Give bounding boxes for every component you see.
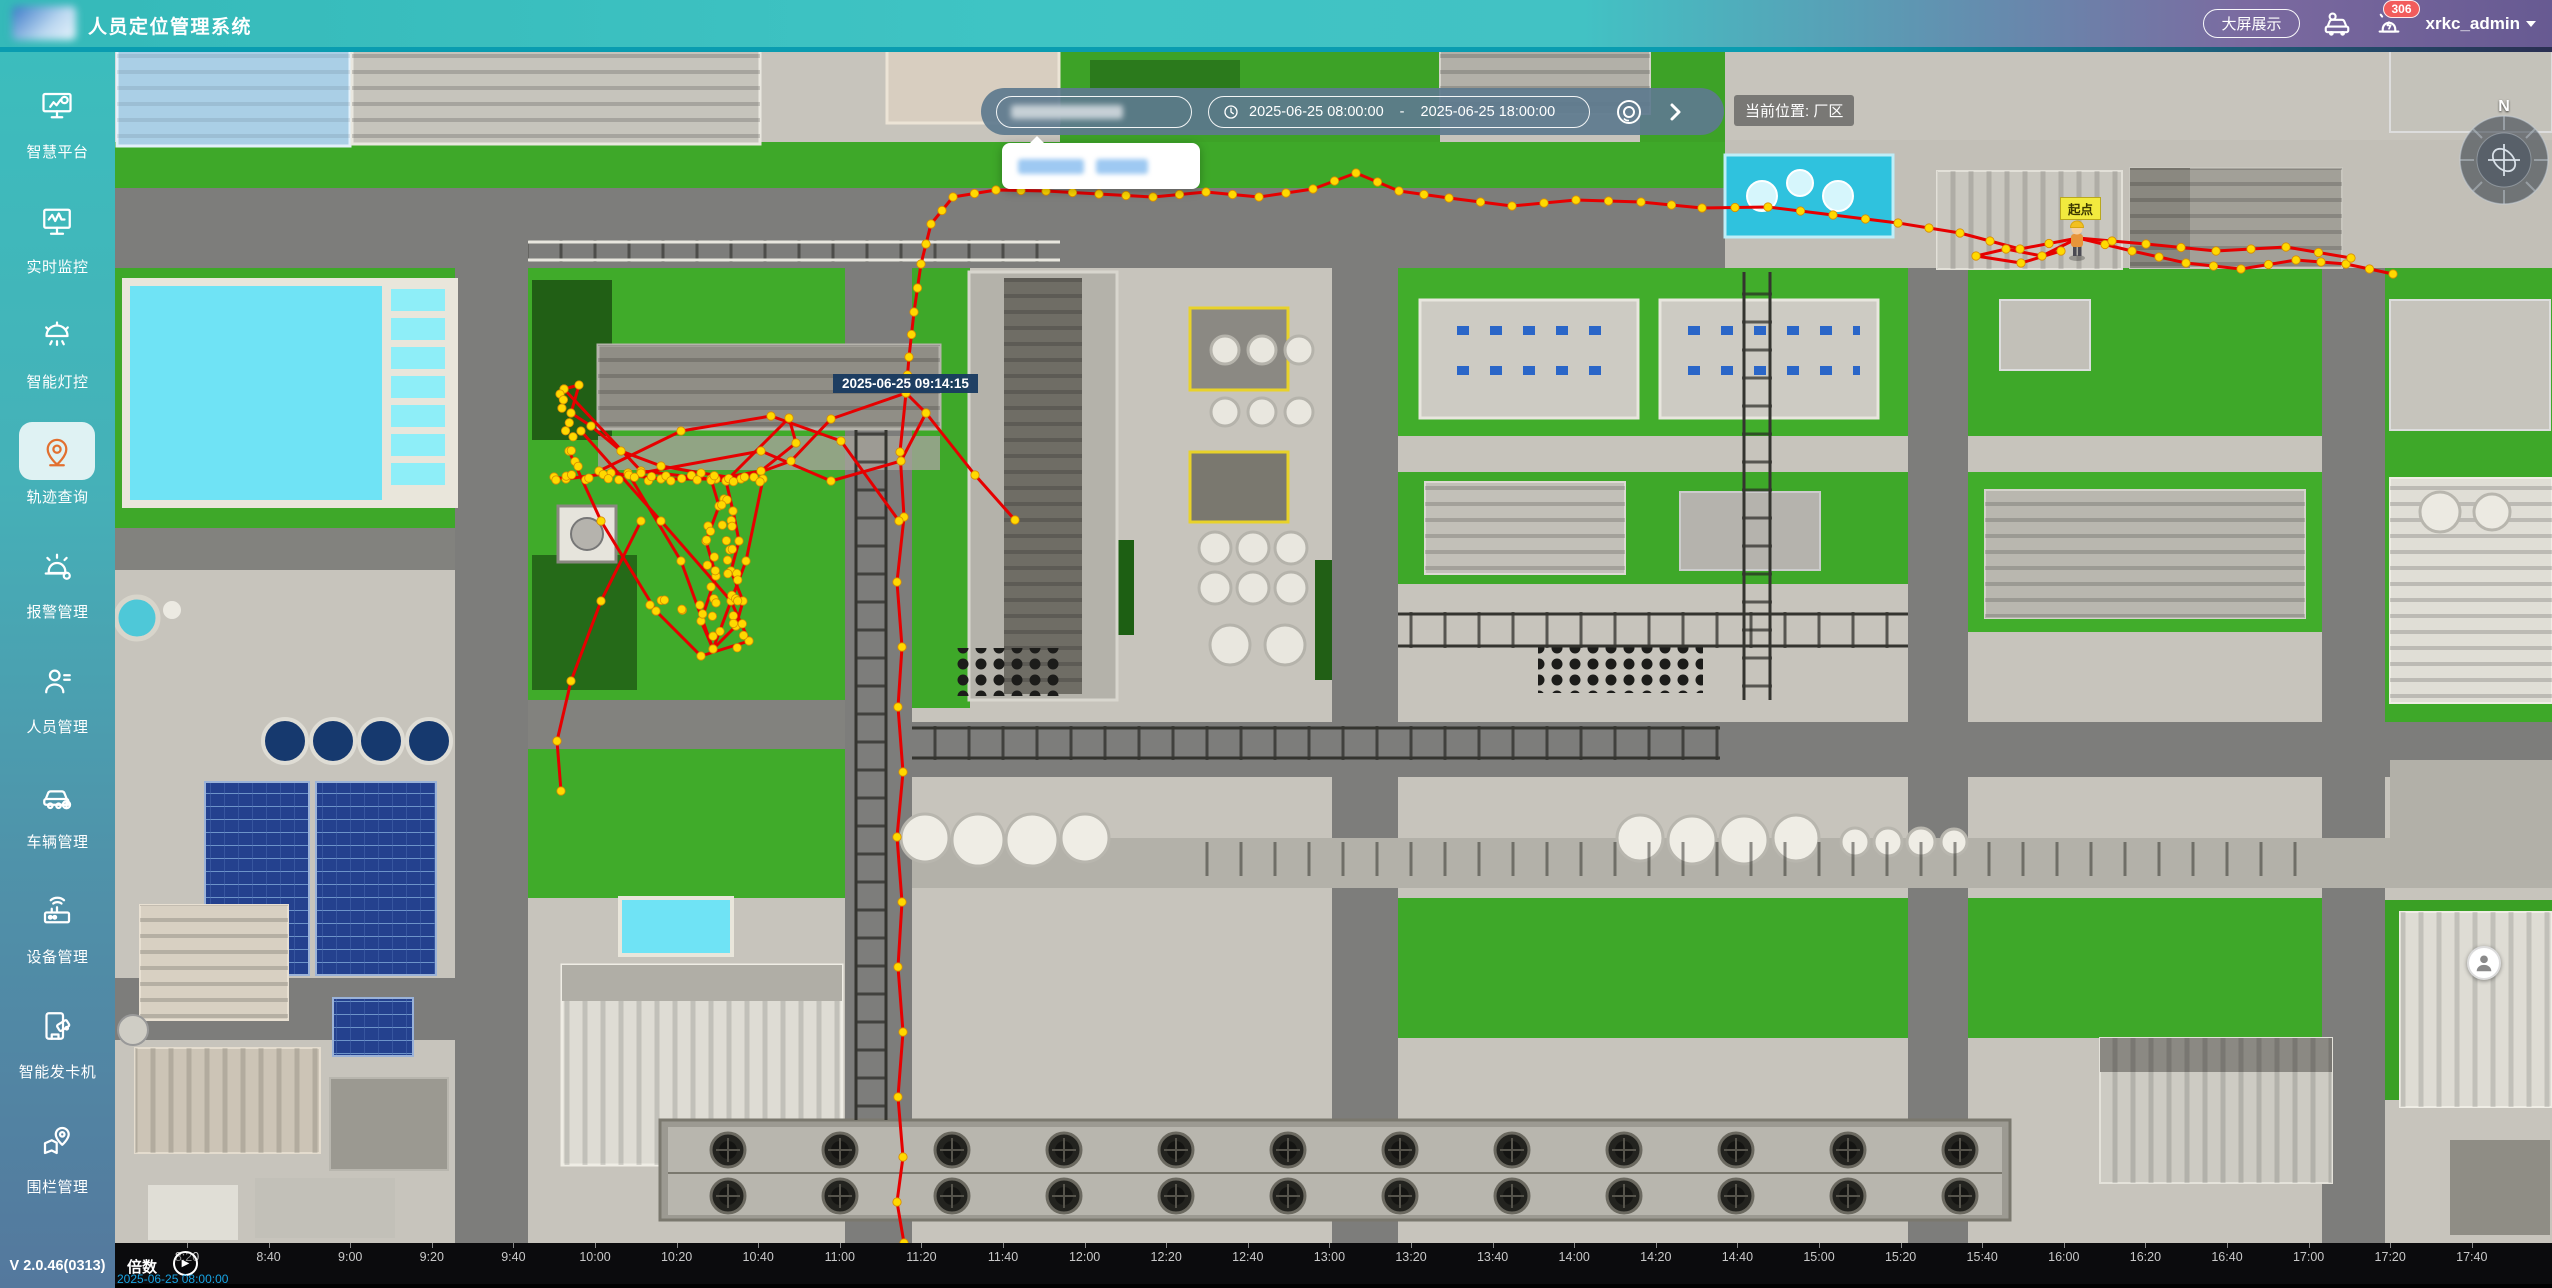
timeline-tickmark bbox=[840, 1243, 841, 1248]
sidebar-item-6[interactable]: 车辆管理 bbox=[19, 767, 97, 882]
sidebar-item-label: 设备管理 bbox=[26, 946, 88, 967]
timeline-tick-label: 16:40 bbox=[2211, 1250, 2242, 1264]
timeline-tick-label: 12:00 bbox=[1069, 1250, 1100, 1264]
date-separator: - bbox=[1400, 104, 1405, 120]
timeline-tickmark bbox=[1329, 1243, 1330, 1248]
timeline-tick-label: 9:20 bbox=[420, 1250, 444, 1264]
suggestion-tag-redacted bbox=[1096, 159, 1148, 174]
sidebar-item-2[interactable]: 智能灯控 bbox=[19, 307, 97, 422]
search-suggestion-item[interactable] bbox=[1002, 143, 1200, 189]
timeline-tick-label: 15:20 bbox=[1885, 1250, 1916, 1264]
timeline-tick-label: 11:20 bbox=[906, 1250, 936, 1264]
dark-warehouse bbox=[598, 345, 940, 470]
timeline-tickmark bbox=[269, 1243, 270, 1248]
timeline-tick-label: 11:40 bbox=[988, 1250, 1018, 1264]
big-screen-button[interactable]: 大屏展示 bbox=[2203, 9, 2299, 38]
sidebar-item-label: 车辆管理 bbox=[26, 831, 88, 852]
start-point-label: 起点 bbox=[2060, 197, 2101, 220]
fence-icon bbox=[19, 1112, 95, 1170]
timeline-tickmark bbox=[2227, 1243, 2228, 1248]
playback-timeline[interactable]: 8:208:409:009:209:4010:0010:2010:4011:00… bbox=[115, 1243, 2552, 1288]
timeline-tickmark bbox=[2390, 1243, 2391, 1248]
timeline-tick-label: 10:00 bbox=[579, 1250, 610, 1264]
timeline-tickmark bbox=[758, 1243, 759, 1248]
sidebar-item-4[interactable]: 报警管理 bbox=[19, 537, 97, 652]
warehouse-top bbox=[352, 46, 760, 144]
aqua-tank-building bbox=[1725, 155, 1893, 237]
timeline-tick-label: 11:00 bbox=[825, 1250, 855, 1264]
alarm-notifications-icon[interactable]: 306 bbox=[2374, 9, 2404, 39]
platform-icon bbox=[19, 77, 95, 135]
locate-target-icon[interactable] bbox=[1612, 95, 1646, 129]
timeline-tick-label: 10:20 bbox=[661, 1250, 692, 1264]
person-icon bbox=[19, 652, 95, 710]
current-location-label: 当前位置: 厂区 bbox=[1734, 95, 1854, 126]
map-canvas[interactable] bbox=[0, 0, 2552, 1288]
timeline-tick-label: 12:20 bbox=[1151, 1250, 1182, 1264]
sidebar-nav: 智慧平台实时监控智能灯控轨迹查询报警管理人员管理车辆管理设备管理智能发卡机围栏管… bbox=[0, 47, 115, 1288]
timeline-tick-label: 8:40 bbox=[256, 1250, 280, 1264]
timeline-tick-label: 17:20 bbox=[2375, 1250, 2406, 1264]
alarm-count-badge: 306 bbox=[2383, 0, 2419, 18]
timeline-tick-label: 16:20 bbox=[2130, 1250, 2161, 1264]
clock-icon bbox=[1223, 104, 1239, 120]
worker-marker[interactable] bbox=[2062, 218, 2092, 267]
timeline-tickmark bbox=[921, 1243, 922, 1248]
timeline-tickmark bbox=[2309, 1243, 2310, 1248]
selected-building-2 bbox=[1190, 452, 1288, 522]
timeline-tickmark bbox=[350, 1243, 351, 1248]
sidebar-item-label: 轨迹查询 bbox=[26, 486, 88, 507]
timeline-tickmark bbox=[1737, 1243, 1738, 1248]
timeline-tickmark bbox=[432, 1243, 433, 1248]
timeline-tickmark bbox=[2145, 1243, 2146, 1248]
user-menu[interactable]: xrkc_admin bbox=[2426, 14, 2537, 34]
timeline-tick-label: 9:40 bbox=[501, 1250, 525, 1264]
timeline-tickmark bbox=[1819, 1243, 1820, 1248]
timeline-tick-label: 13:20 bbox=[1395, 1250, 1426, 1264]
timeline-tickmark bbox=[595, 1243, 596, 1248]
round-tank bbox=[116, 597, 158, 639]
bottom-right-building bbox=[2100, 1038, 2332, 1183]
timeline-tick-label: 13:40 bbox=[1477, 1250, 1508, 1264]
username-text: xrkc_admin bbox=[2426, 14, 2521, 34]
card-icon bbox=[19, 997, 95, 1055]
app-logo bbox=[12, 6, 76, 40]
sidebar-item-label: 围栏管理 bbox=[26, 1176, 88, 1197]
timeline-tickmark bbox=[677, 1243, 678, 1248]
timeline-tick-label: 16:00 bbox=[2048, 1250, 2079, 1264]
timeline-tickmark bbox=[1085, 1243, 1086, 1248]
date-range-picker[interactable]: 2025-06-25 08:00:00 - 2025-06-25 18:00:0… bbox=[1208, 96, 1590, 128]
long-building bbox=[969, 272, 1117, 700]
date-end: 2025-06-25 18:00:00 bbox=[1421, 104, 1556, 120]
timeline-tickmark bbox=[513, 1243, 514, 1248]
trajectory-time-tooltip: 2025-06-25 09:14:15 bbox=[833, 374, 978, 393]
person-avatar-marker[interactable] bbox=[2467, 946, 2501, 980]
suggestion-text-redacted bbox=[1018, 159, 1084, 174]
chevron-down-icon bbox=[2526, 21, 2536, 27]
current-time-label: 2025-06-25 08:00:00 bbox=[117, 1272, 228, 1286]
sidebar-item-label: 实时监控 bbox=[26, 256, 88, 277]
monitor-icon bbox=[19, 192, 95, 250]
sidebar-item-1[interactable]: 实时监控 bbox=[19, 192, 97, 307]
sidebar-item-label: 人员管理 bbox=[26, 716, 88, 737]
vehicle-monitor-icon[interactable] bbox=[2322, 9, 2352, 39]
pipe-bank-2 bbox=[1538, 645, 1703, 693]
sidebar-item-label: 智能灯控 bbox=[26, 371, 88, 392]
sidebar-item-7[interactable]: 设备管理 bbox=[19, 882, 97, 997]
timeline-tickmark bbox=[1003, 1243, 1004, 1248]
sidebar-item-5[interactable]: 人员管理 bbox=[19, 652, 97, 767]
sidebar-item-label: 智能发卡机 bbox=[19, 1061, 97, 1082]
vehicle-icon bbox=[19, 767, 95, 825]
timeline-tick-label: 12:40 bbox=[1232, 1250, 1263, 1264]
timeline-tick-label: 13:00 bbox=[1314, 1250, 1345, 1264]
device-icon bbox=[19, 882, 95, 940]
timeline-tick-label: 15:00 bbox=[1803, 1250, 1834, 1264]
timeline-tick-label: 17:00 bbox=[2293, 1250, 2324, 1264]
pool bbox=[122, 278, 458, 508]
glass-building bbox=[117, 46, 350, 146]
timeline-tickmark bbox=[1656, 1243, 1657, 1248]
timeline-tick-label: 14:20 bbox=[1640, 1250, 1671, 1264]
sidebar-item-0[interactable]: 智慧平台 bbox=[19, 77, 97, 192]
compass[interactable]: N bbox=[2454, 98, 2552, 210]
timeline-tickmark bbox=[1982, 1243, 1983, 1248]
person-search-input[interactable] bbox=[996, 96, 1192, 128]
app-header: 人员定位管理系统 大屏展示 306 xrkc_admin bbox=[0, 0, 2552, 47]
small-pool bbox=[620, 898, 732, 955]
timeline-tickmark bbox=[1901, 1243, 1902, 1248]
timeline-tick-label: 17:40 bbox=[2456, 1250, 2487, 1264]
right-white-building bbox=[2400, 912, 2552, 1107]
timeline-tickmark bbox=[1411, 1243, 1412, 1248]
pipe-bank-1 bbox=[955, 648, 1060, 696]
timeline-tick-label: 9:00 bbox=[338, 1250, 362, 1264]
track-query-toolbar: 2025-06-25 08:00:00 - 2025-06-25 18:00:0… bbox=[981, 88, 1724, 135]
search-value-redacted bbox=[1011, 105, 1123, 119]
app-title: 人员定位管理系统 bbox=[88, 12, 252, 39]
timeline-tickmark bbox=[2064, 1243, 2065, 1248]
play-forward-icon[interactable] bbox=[1660, 97, 1690, 127]
timeline-tick-label: 10:40 bbox=[743, 1250, 774, 1264]
timeline-tickmark bbox=[1574, 1243, 1575, 1248]
timeline-tickmark bbox=[1493, 1243, 1494, 1248]
timeline-tickmark bbox=[2472, 1243, 2473, 1248]
date-start: 2025-06-25 08:00:00 bbox=[1249, 104, 1384, 120]
timeline-tickmark bbox=[1248, 1243, 1249, 1248]
timeline-tick-label: 15:40 bbox=[1967, 1250, 1998, 1264]
process-building-1 bbox=[1420, 300, 1638, 418]
timeline-tickmark bbox=[1166, 1243, 1167, 1248]
version-label: V 2.0.46(0313) bbox=[0, 1258, 115, 1274]
timeline-tick-label: 14:00 bbox=[1559, 1250, 1590, 1264]
sidebar-item-label: 智慧平台 bbox=[26, 141, 88, 162]
timeline-tickmark bbox=[187, 1243, 188, 1248]
track-icon bbox=[19, 422, 95, 480]
light-icon bbox=[19, 307, 95, 365]
sidebar-item-8[interactable]: 智能发卡机 bbox=[19, 997, 97, 1112]
alarm-icon bbox=[19, 537, 95, 595]
sidebar-item-9[interactable]: 围栏管理 bbox=[19, 1112, 97, 1227]
cooling-towers bbox=[660, 1120, 2010, 1220]
timeline-tick-label: 14:40 bbox=[1722, 1250, 1753, 1264]
sidebar-item-label: 报警管理 bbox=[26, 601, 88, 622]
sidebar-item-3[interactable]: 轨迹查询 bbox=[19, 422, 97, 537]
